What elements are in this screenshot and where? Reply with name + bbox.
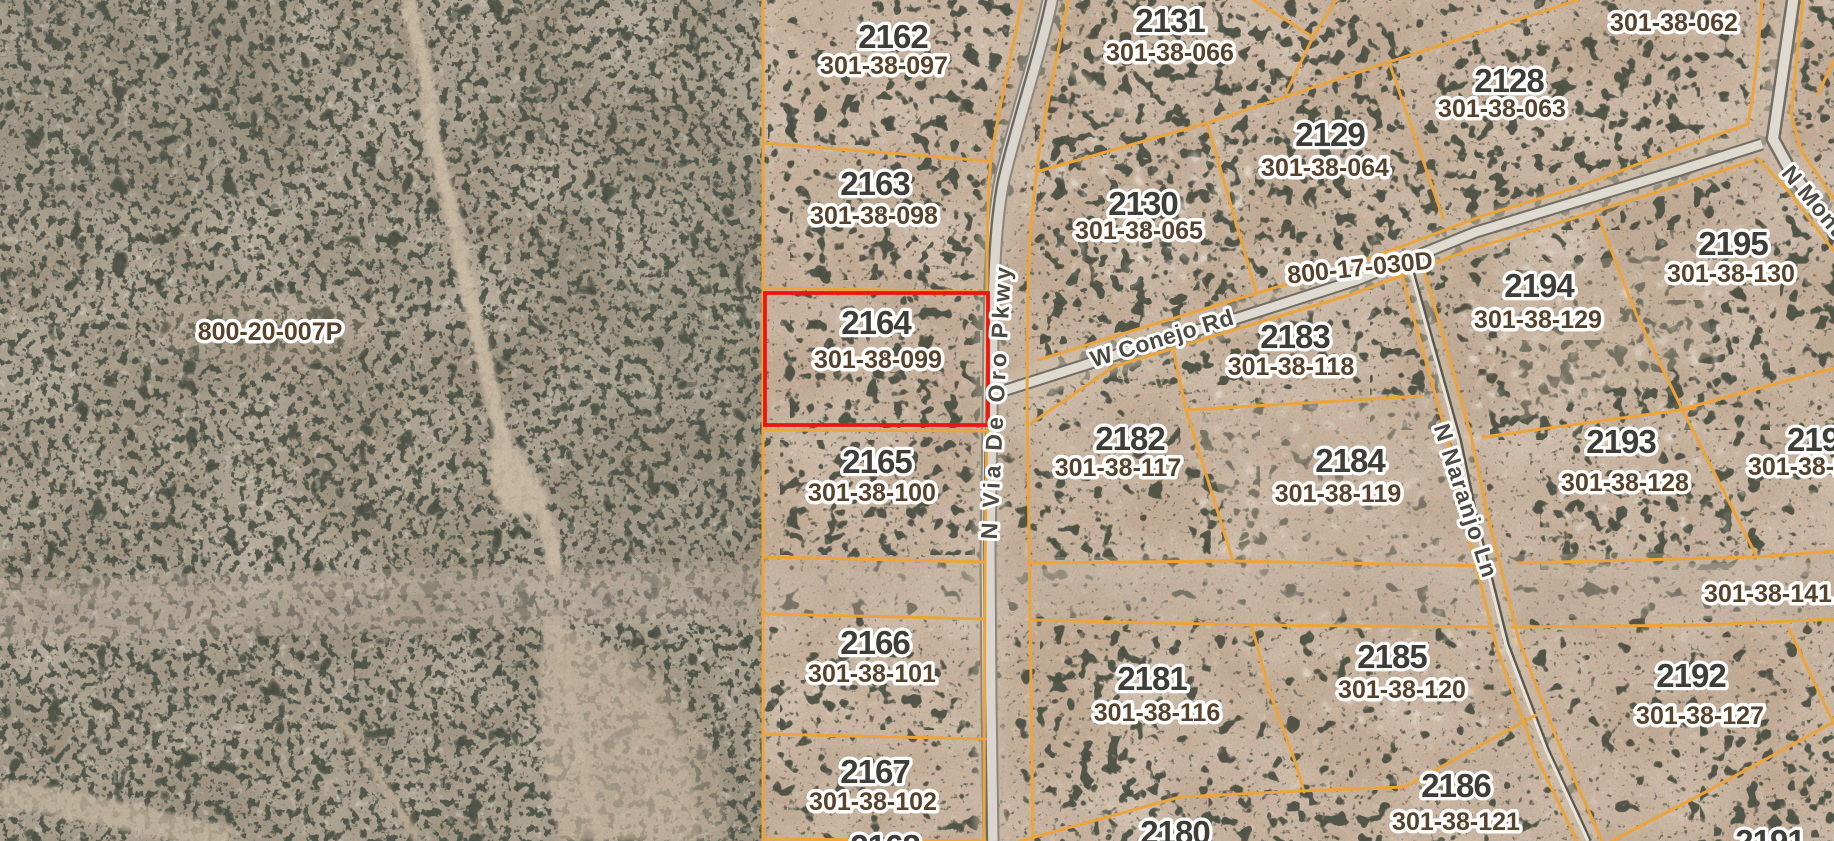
svg-text:2195: 2195 — [1698, 225, 1768, 262]
svg-text:2194: 2194 — [1504, 267, 1575, 304]
svg-text:2128: 2128 — [1474, 62, 1544, 99]
svg-text:2193: 2193 — [1586, 423, 1656, 460]
svg-text:301-38-129: 301-38-129 — [1474, 306, 1602, 334]
svg-text:301-38-062: 301-38-062 — [1610, 9, 1738, 37]
svg-text:301-38-098: 301-38-098 — [810, 202, 938, 230]
svg-text:2168: 2168 — [850, 828, 920, 841]
svg-text:2191: 2191 — [1735, 823, 1805, 841]
svg-text:301-38-066: 301-38-066 — [1106, 39, 1234, 67]
svg-text:2162: 2162 — [858, 18, 928, 55]
svg-text:2185: 2185 — [1357, 638, 1427, 675]
svg-text:301-38-099: 301-38-099 — [814, 346, 942, 374]
svg-text:301-38-065: 301-38-065 — [1075, 217, 1203, 245]
svg-text:301-38-118: 301-38-118 — [1228, 353, 1355, 381]
svg-text:301-38-141: 301-38-141 — [1704, 580, 1832, 608]
svg-text:2192: 2192 — [1656, 657, 1726, 694]
svg-text:800-20-007P: 800-20-007P — [198, 318, 343, 346]
svg-text:2180: 2180 — [1140, 814, 1209, 841]
svg-text:2181: 2181 — [1117, 660, 1187, 697]
svg-text:2183: 2183 — [1260, 318, 1330, 355]
svg-text:301-38-130: 301-38-130 — [1667, 260, 1795, 288]
svg-text:301-38-116: 301-38-116 — [1094, 699, 1221, 727]
svg-text:301-38-063: 301-38-063 — [1438, 95, 1566, 123]
svg-text:301-38-064: 301-38-064 — [1261, 154, 1389, 182]
svg-text:301-38-121: 301-38-121 — [1392, 808, 1520, 836]
svg-text:301-38-119: 301-38-119 — [1275, 480, 1402, 508]
svg-text:301-38-128: 301-38-128 — [1561, 469, 1689, 497]
svg-text:301-38-127: 301-38-127 — [1636, 702, 1764, 730]
svg-text:2182: 2182 — [1095, 420, 1165, 457]
svg-text:301-38-097: 301-38-097 — [820, 52, 948, 80]
svg-text:301-38-1: 301-38-1 — [1748, 453, 1834, 481]
svg-text:2166: 2166 — [840, 624, 910, 661]
svg-text:2131: 2131 — [1135, 2, 1205, 39]
svg-text:2186: 2186 — [1421, 767, 1491, 804]
svg-text:301-38-117: 301-38-117 — [1055, 454, 1182, 482]
svg-text:301-38-100: 301-38-100 — [808, 479, 936, 507]
svg-text:2163: 2163 — [840, 165, 910, 202]
svg-text:2129: 2129 — [1295, 116, 1365, 153]
svg-text:301-38-102: 301-38-102 — [809, 788, 937, 816]
svg-text:2164: 2164 — [841, 304, 912, 341]
svg-text:2184: 2184 — [1315, 442, 1386, 479]
svg-text:2165: 2165 — [842, 443, 912, 480]
svg-text:301-38-120: 301-38-120 — [1338, 676, 1466, 704]
svg-text:2167: 2167 — [840, 753, 909, 790]
svg-text:301-38-101: 301-38-101 — [808, 660, 936, 688]
